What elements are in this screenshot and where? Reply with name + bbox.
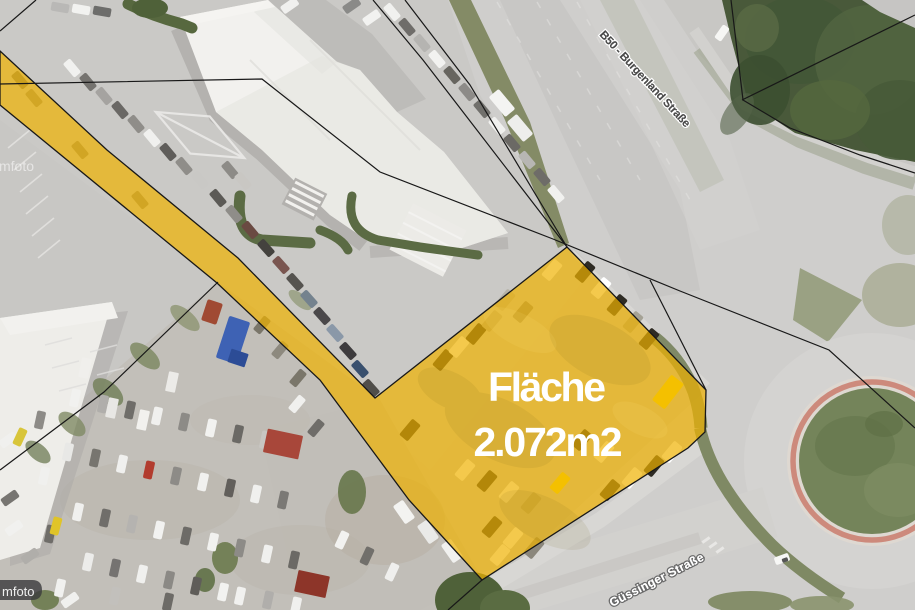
svg-text:mfoto: mfoto xyxy=(0,158,34,174)
svg-text:mfoto: mfoto xyxy=(2,584,35,599)
svg-text:Fläche: Fläche xyxy=(488,364,606,410)
svg-text:2.072m2: 2.072m2 xyxy=(474,419,623,465)
